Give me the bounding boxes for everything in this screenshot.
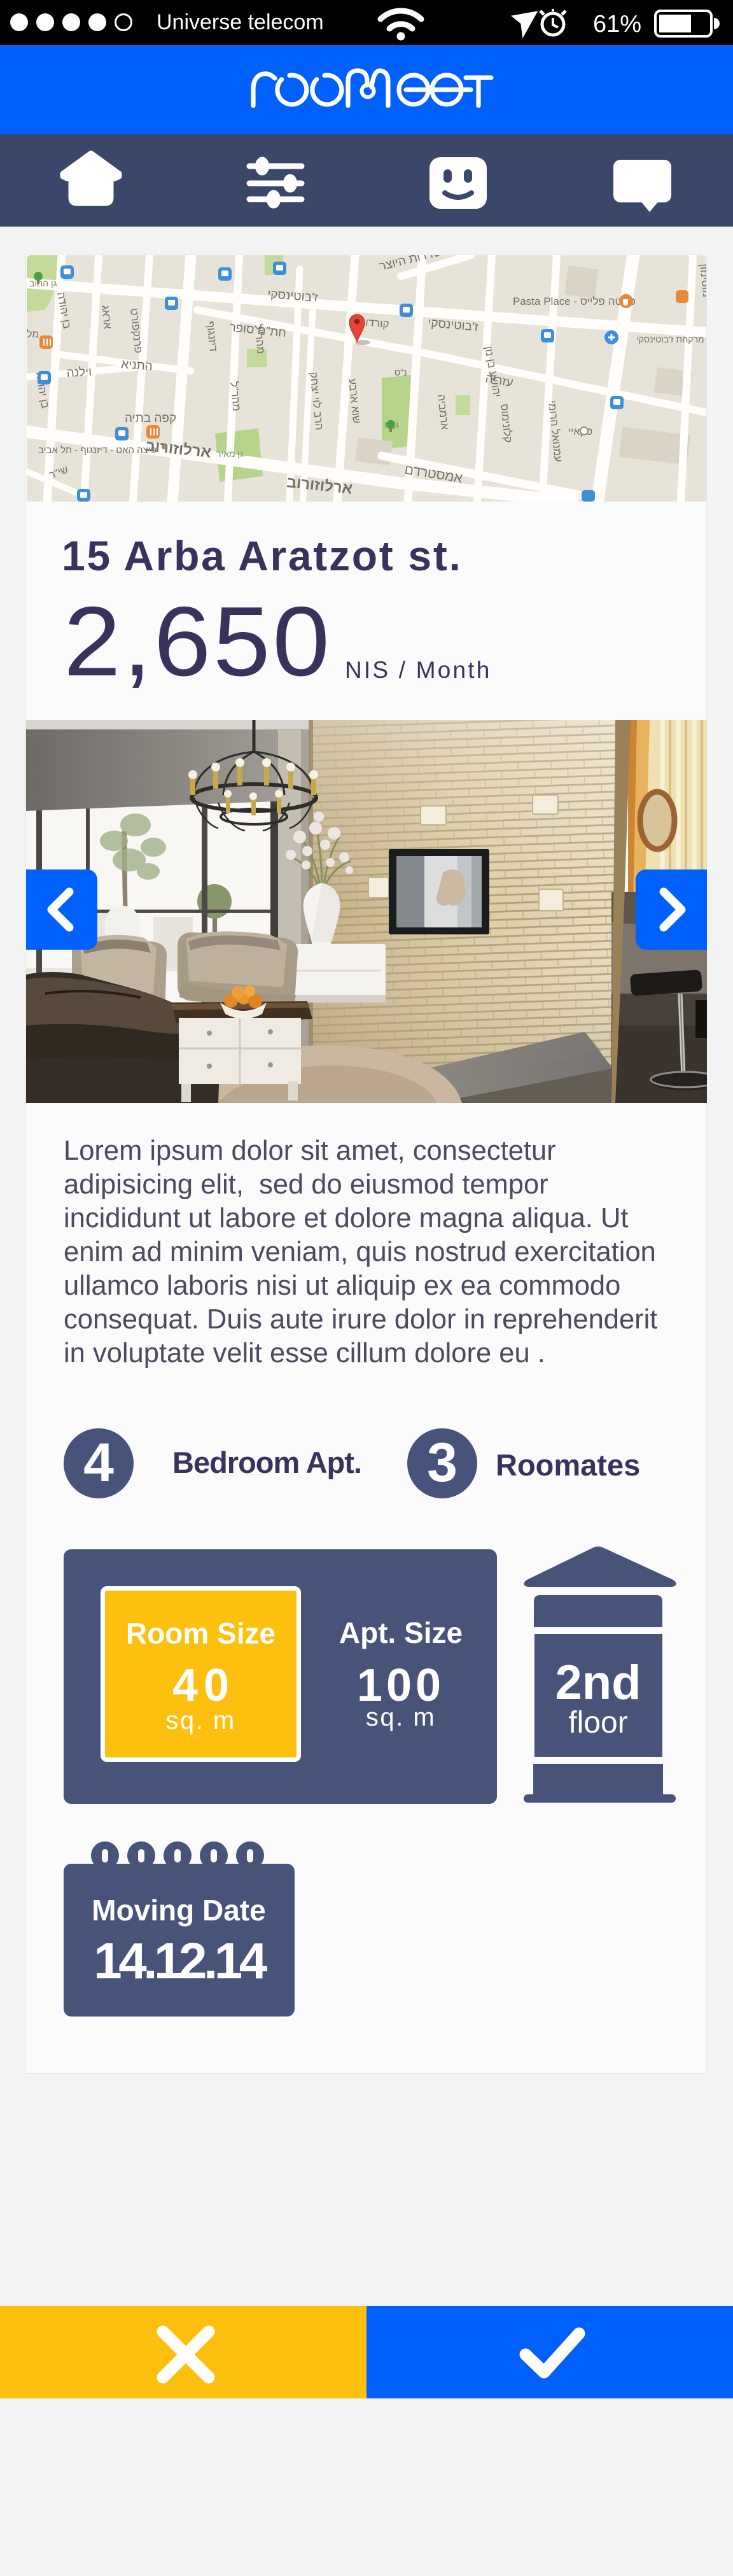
svg-text:floor: floor — [568, 1706, 627, 1740]
svg-text:14.12.14: 14.12.14 — [94, 1932, 267, 1989]
svg-text:2nd: 2nd — [555, 1656, 641, 1710]
svg-text:מל: מל — [27, 328, 39, 340]
svg-text:גן מאיר: גן מאיר — [216, 449, 244, 459]
svg-text:גן החוב: גן החוב — [29, 278, 57, 288]
svg-text:נ"ס: נ"ס — [394, 367, 407, 377]
svg-text:התניא: התניא — [121, 358, 153, 373]
svg-text:קפה בתיה: קפה בתיה — [125, 412, 176, 425]
svg-text:אראג: אראג — [99, 304, 114, 330]
svg-text:61%: 61% — [593, 11, 641, 38]
svg-text:פיצה האט - דיזנגוף - תל אביב: פיצה האט - דיזנגוף - תל אביב — [38, 445, 157, 456]
svg-text:וילנה: וילנה — [66, 365, 92, 380]
svg-text:בית מרקחת ז'בוטינסקי: בית מרקחת ז'בוטינסקי — [636, 334, 706, 344]
svg-text:Pasta Place - פסטה פלייס: Pasta Place - פסטה פלייס — [513, 295, 636, 307]
svg-text:Moving Date: Moving Date — [92, 1894, 265, 1927]
svg-text:Universe telecom: Universe telecom — [157, 10, 324, 34]
